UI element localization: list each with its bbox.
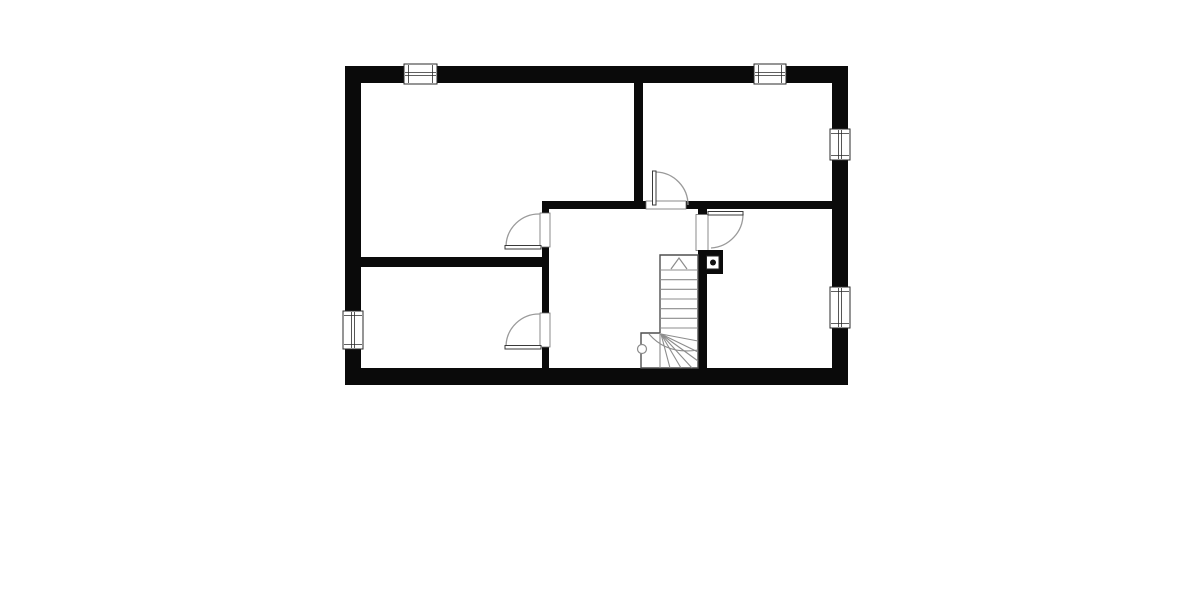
wall-hall-top-left xyxy=(542,201,646,209)
window-left xyxy=(343,311,363,349)
wall-hall-left-mid xyxy=(542,247,549,313)
chimney-block-flue-dot xyxy=(710,260,716,266)
window-top-left xyxy=(404,64,437,84)
wall-top-rooms-divider xyxy=(634,83,643,201)
wall-left-rooms-divider xyxy=(361,257,542,267)
wall-right-door-stub xyxy=(698,201,707,215)
winder-staircase-newel-post xyxy=(638,345,647,354)
wall-hall-left-lower-stub xyxy=(542,347,549,368)
outer-wall-bottom xyxy=(345,368,848,385)
floor-plan-page xyxy=(0,0,1200,600)
wall-hall-left-upper-stub xyxy=(542,201,549,213)
floor-plan-drawing xyxy=(0,0,1200,600)
window-right-lower xyxy=(830,287,850,328)
door-top-left-room-leaf xyxy=(505,246,541,250)
door-bottom-left-room-opening xyxy=(540,313,550,347)
door-top-right-room-leaf xyxy=(653,171,657,205)
wall-hall-top-right xyxy=(686,201,832,209)
door-top-left-room-opening xyxy=(540,213,550,247)
canvas-background xyxy=(0,0,1200,600)
door-bottom-left-room-leaf xyxy=(505,346,541,350)
door-bottom-right-room-leaf xyxy=(708,212,743,216)
outer-wall-right xyxy=(832,66,848,385)
door-bottom-right-room-opening xyxy=(696,215,708,251)
